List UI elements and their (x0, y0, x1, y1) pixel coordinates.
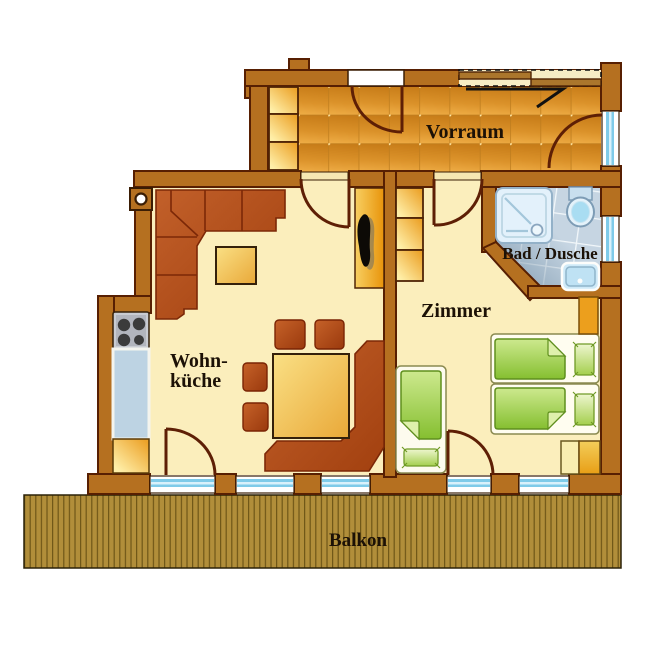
svg-text:Balkon: Balkon (329, 530, 388, 551)
svg-text:Wohn-: Wohn- (170, 350, 228, 372)
svg-text:Vorraum: Vorraum (426, 121, 504, 143)
svg-text:Bad / Dusche: Bad / Dusche (502, 244, 598, 263)
svg-text:Zimmer: Zimmer (421, 300, 491, 322)
svg-text:küche: küche (170, 370, 221, 392)
